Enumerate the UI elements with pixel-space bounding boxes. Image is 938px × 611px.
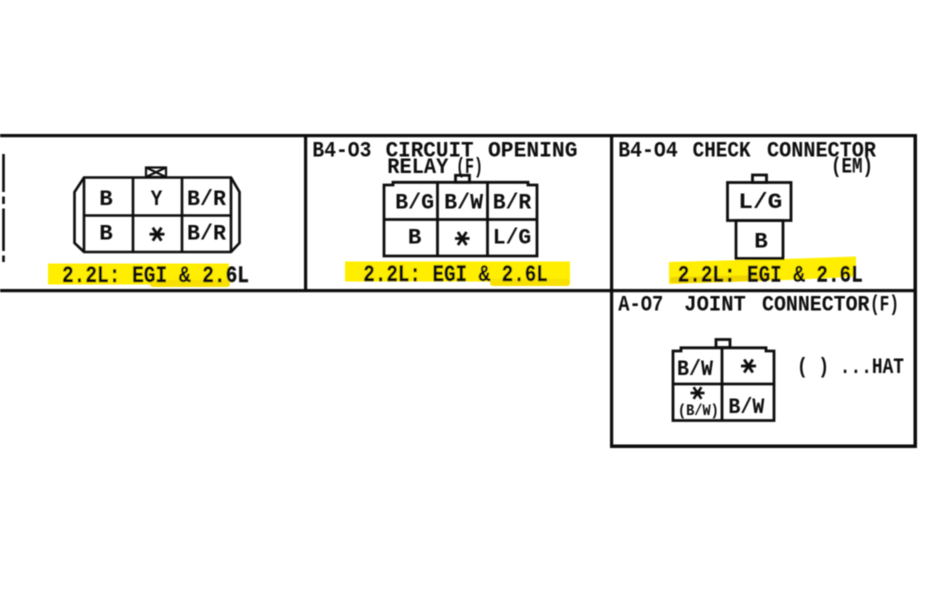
svg-text:CHECK: CHECK xyxy=(693,138,752,163)
svg-text:B: B xyxy=(99,187,113,212)
svg-text:L/G: L/G xyxy=(493,226,532,251)
svg-text:B/G: B/G xyxy=(395,191,434,216)
svg-text:CONNECTOR: CONNECTOR xyxy=(762,293,870,318)
svg-text:(EM): (EM) xyxy=(831,155,873,180)
svg-text:B/R: B/R xyxy=(187,187,227,212)
svg-text:B/W: B/W xyxy=(677,357,714,382)
svg-text:B: B xyxy=(754,230,768,255)
svg-text:B/W: B/W xyxy=(444,191,484,216)
svg-text:B4-O3: B4-O3 xyxy=(312,138,371,163)
svg-text:B/W: B/W xyxy=(728,395,765,420)
svg-text:B: B xyxy=(408,226,422,251)
svg-text:(F): (F) xyxy=(870,293,899,318)
svg-text:2.2L: EGI & 2.6L: 2.2L: EGI & 2.6L xyxy=(62,263,249,289)
svg-text:2.2L: EGI & 2.6L: 2.2L: EGI & 2.6L xyxy=(363,262,548,288)
svg-text:2.2L: EGI & 2.6L: 2.2L: EGI & 2.6L xyxy=(678,263,863,289)
svg-text:B: B xyxy=(99,222,113,247)
svg-text:(B/W): (B/W) xyxy=(678,402,719,420)
svg-text:JOINT: JOINT xyxy=(684,293,746,318)
svg-text:Y: Y xyxy=(151,187,163,212)
svg-text:A-O7: A-O7 xyxy=(618,293,663,318)
svg-text:( ) ...HAT: ( ) ...HAT xyxy=(797,355,904,380)
svg-text:B4-O4: B4-O4 xyxy=(618,138,677,163)
svg-text:RELAY: RELAY xyxy=(387,155,449,180)
svg-text:B/R: B/R xyxy=(493,191,532,216)
svg-text:L/G: L/G xyxy=(738,190,782,215)
svg-text:OPENING: OPENING xyxy=(488,138,578,163)
svg-text:B/R: B/R xyxy=(187,222,227,247)
